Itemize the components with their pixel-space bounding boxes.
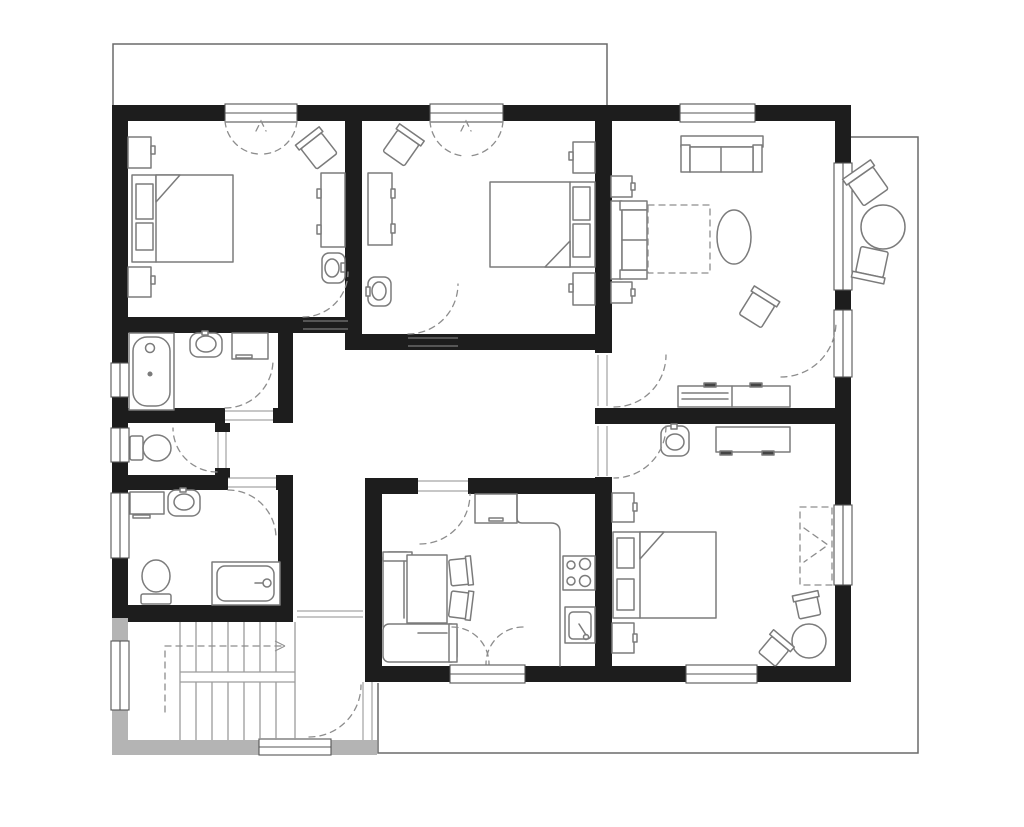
bed1-nightstand-bottom: [128, 267, 155, 297]
bed1-desk: [317, 173, 345, 247]
living-side-table-bottom: [611, 282, 635, 303]
bed1-sink: [322, 253, 345, 283]
living-sofa-top: [681, 136, 763, 172]
living-side-table-top: [611, 176, 635, 197]
bed3-nightstand-top: [612, 493, 637, 522]
bed2-nightstand-top: [569, 142, 595, 173]
kitchen-tall-cabinet: [475, 494, 517, 523]
bed2-nightstand-bottom: [569, 273, 595, 305]
bath1-sink: [190, 331, 222, 357]
bath1-washer: [232, 333, 268, 359]
floor-plan: [0, 0, 1024, 827]
bed2-double-bed: [490, 182, 595, 267]
kitchen-stove: [563, 556, 595, 590]
dining-chair-b: [448, 591, 473, 620]
bed1-nightstand-top: [128, 137, 155, 168]
floor-plan-svg: [0, 0, 1024, 827]
bath2-shower: [212, 562, 280, 605]
living-sideboard: [678, 383, 790, 407]
bed2-sink: [366, 277, 391, 306]
kitchen-sink: [565, 607, 595, 643]
bath2-sink: [168, 488, 200, 516]
dining-chair-a: [449, 556, 474, 586]
bed3-dresser: [716, 427, 790, 455]
bed3-nightstand-bottom: [612, 623, 637, 653]
bed3-double-bed: [613, 532, 716, 618]
dining-table: [407, 555, 447, 623]
bath2-cabinet: [130, 492, 164, 518]
bed3-sink: [661, 424, 689, 456]
bed1-double-bed: [132, 175, 233, 262]
living-sofa-left: [611, 201, 647, 279]
bed2-desk: [368, 173, 395, 245]
bath1-bathtub: [129, 333, 174, 410]
